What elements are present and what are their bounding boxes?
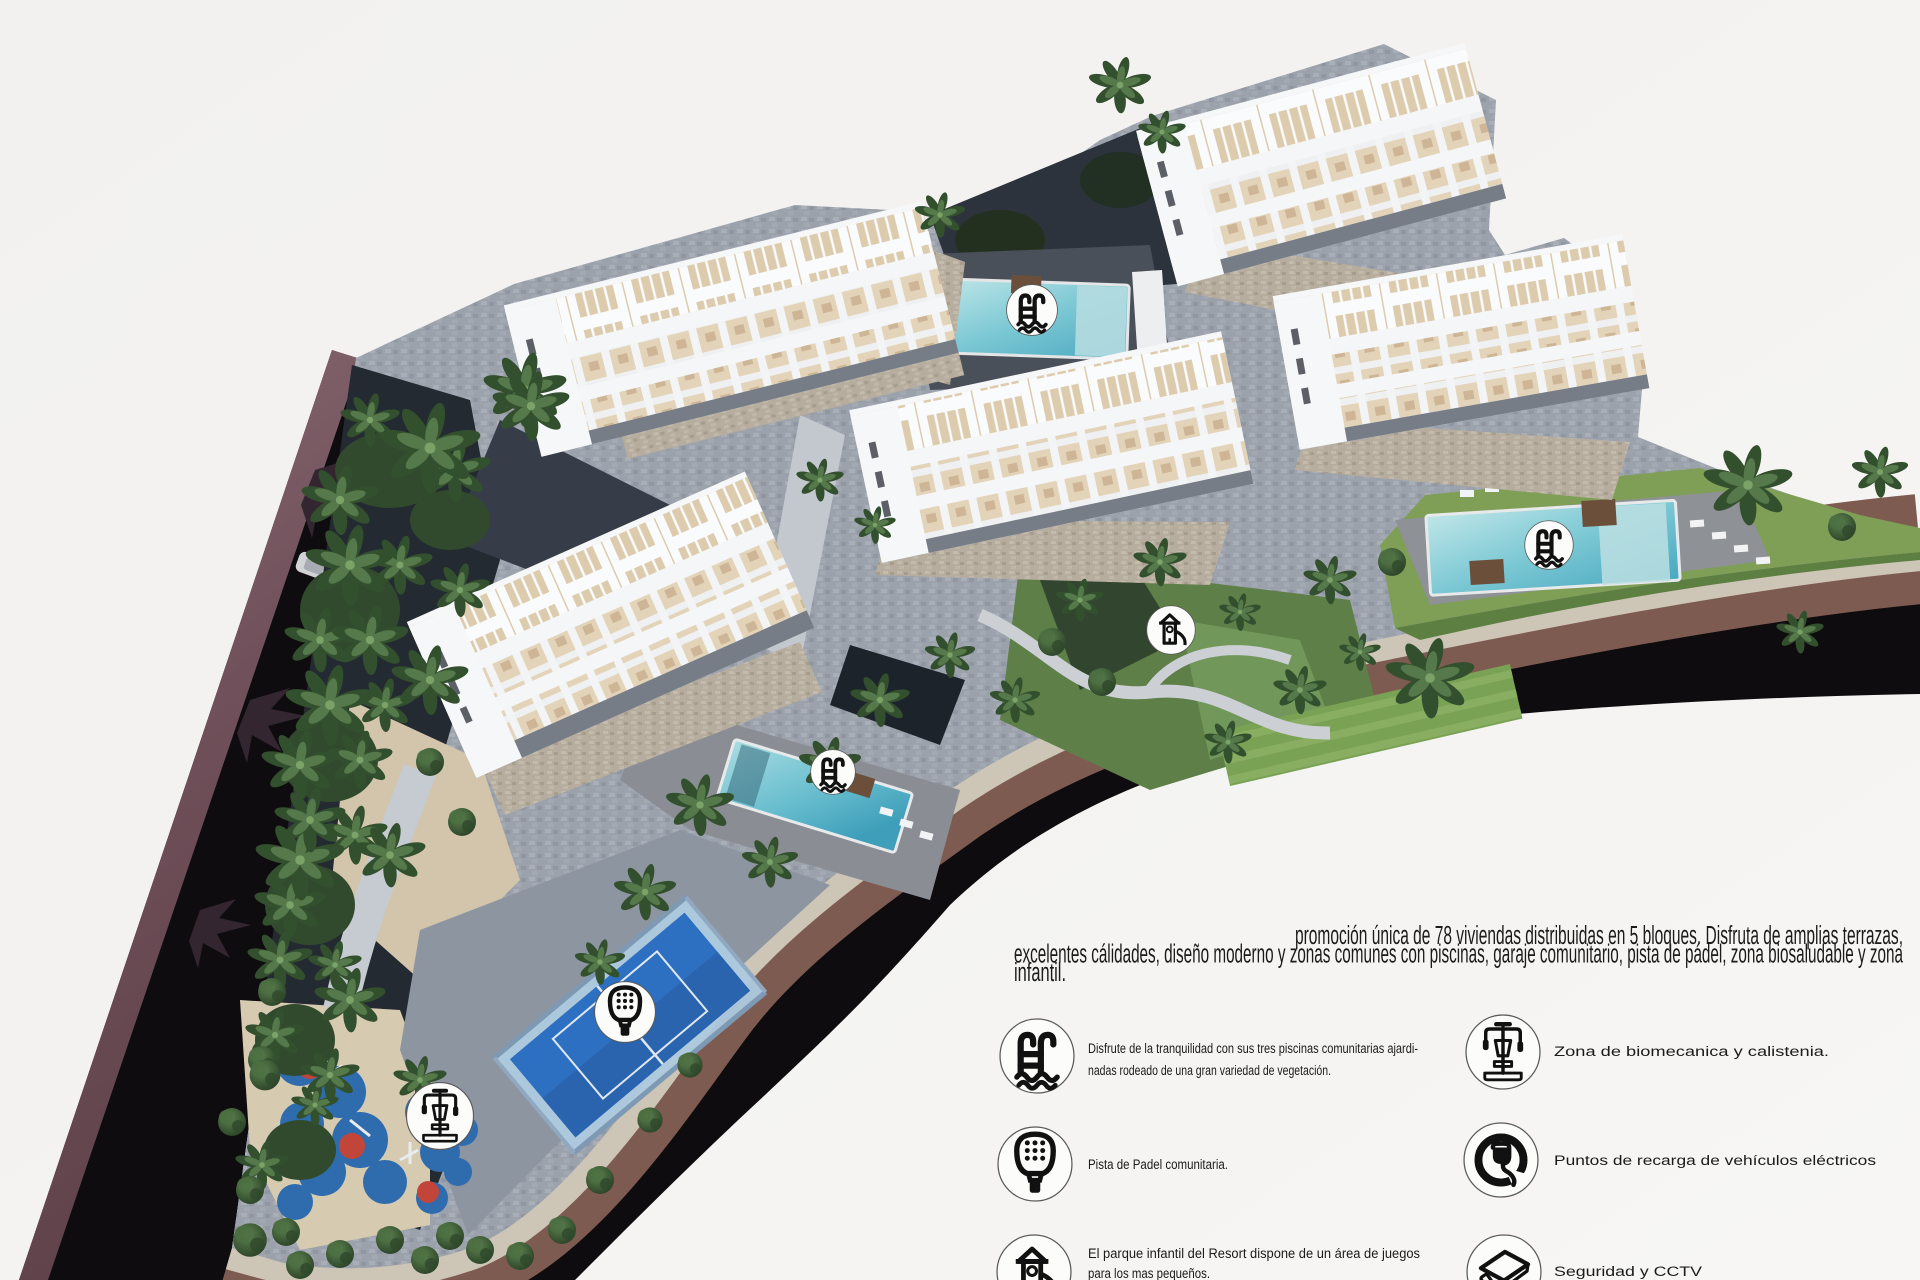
svg-text:Disfrute de la tranquilidad co: Disfrute de la tranquilidad con sus tres…: [1088, 1041, 1418, 1056]
svg-text:Zona de biomecanica y calisten: Zona de biomecanica y calistenia.: [1554, 1044, 1829, 1059]
svg-text:Puntos de recarga de vehículos: Puntos de recarga de vehículos eléctrico…: [1554, 1153, 1876, 1168]
svg-text:Seguridad y CCTV: Seguridad y CCTV: [1554, 1264, 1702, 1279]
svg-text:infantil.: infantil.: [1014, 959, 1066, 987]
svg-text:para los mas pequeños.: para los mas pequeños.: [1088, 1266, 1210, 1280]
svg-text:excelentes cálidades, diseño m: excelentes cálidades, diseño moderno y z…: [1014, 941, 1903, 969]
svg-text:nadas rodeado de una gran vari: nadas rodeado de una gran variedad de ve…: [1088, 1063, 1331, 1078]
svg-text:El parque infantil del Resort: El parque infantil del Resort dispone de…: [1088, 1246, 1420, 1261]
svg-text:Pista de Padel comunitaria.: Pista de Padel comunitaria.: [1088, 1157, 1228, 1172]
